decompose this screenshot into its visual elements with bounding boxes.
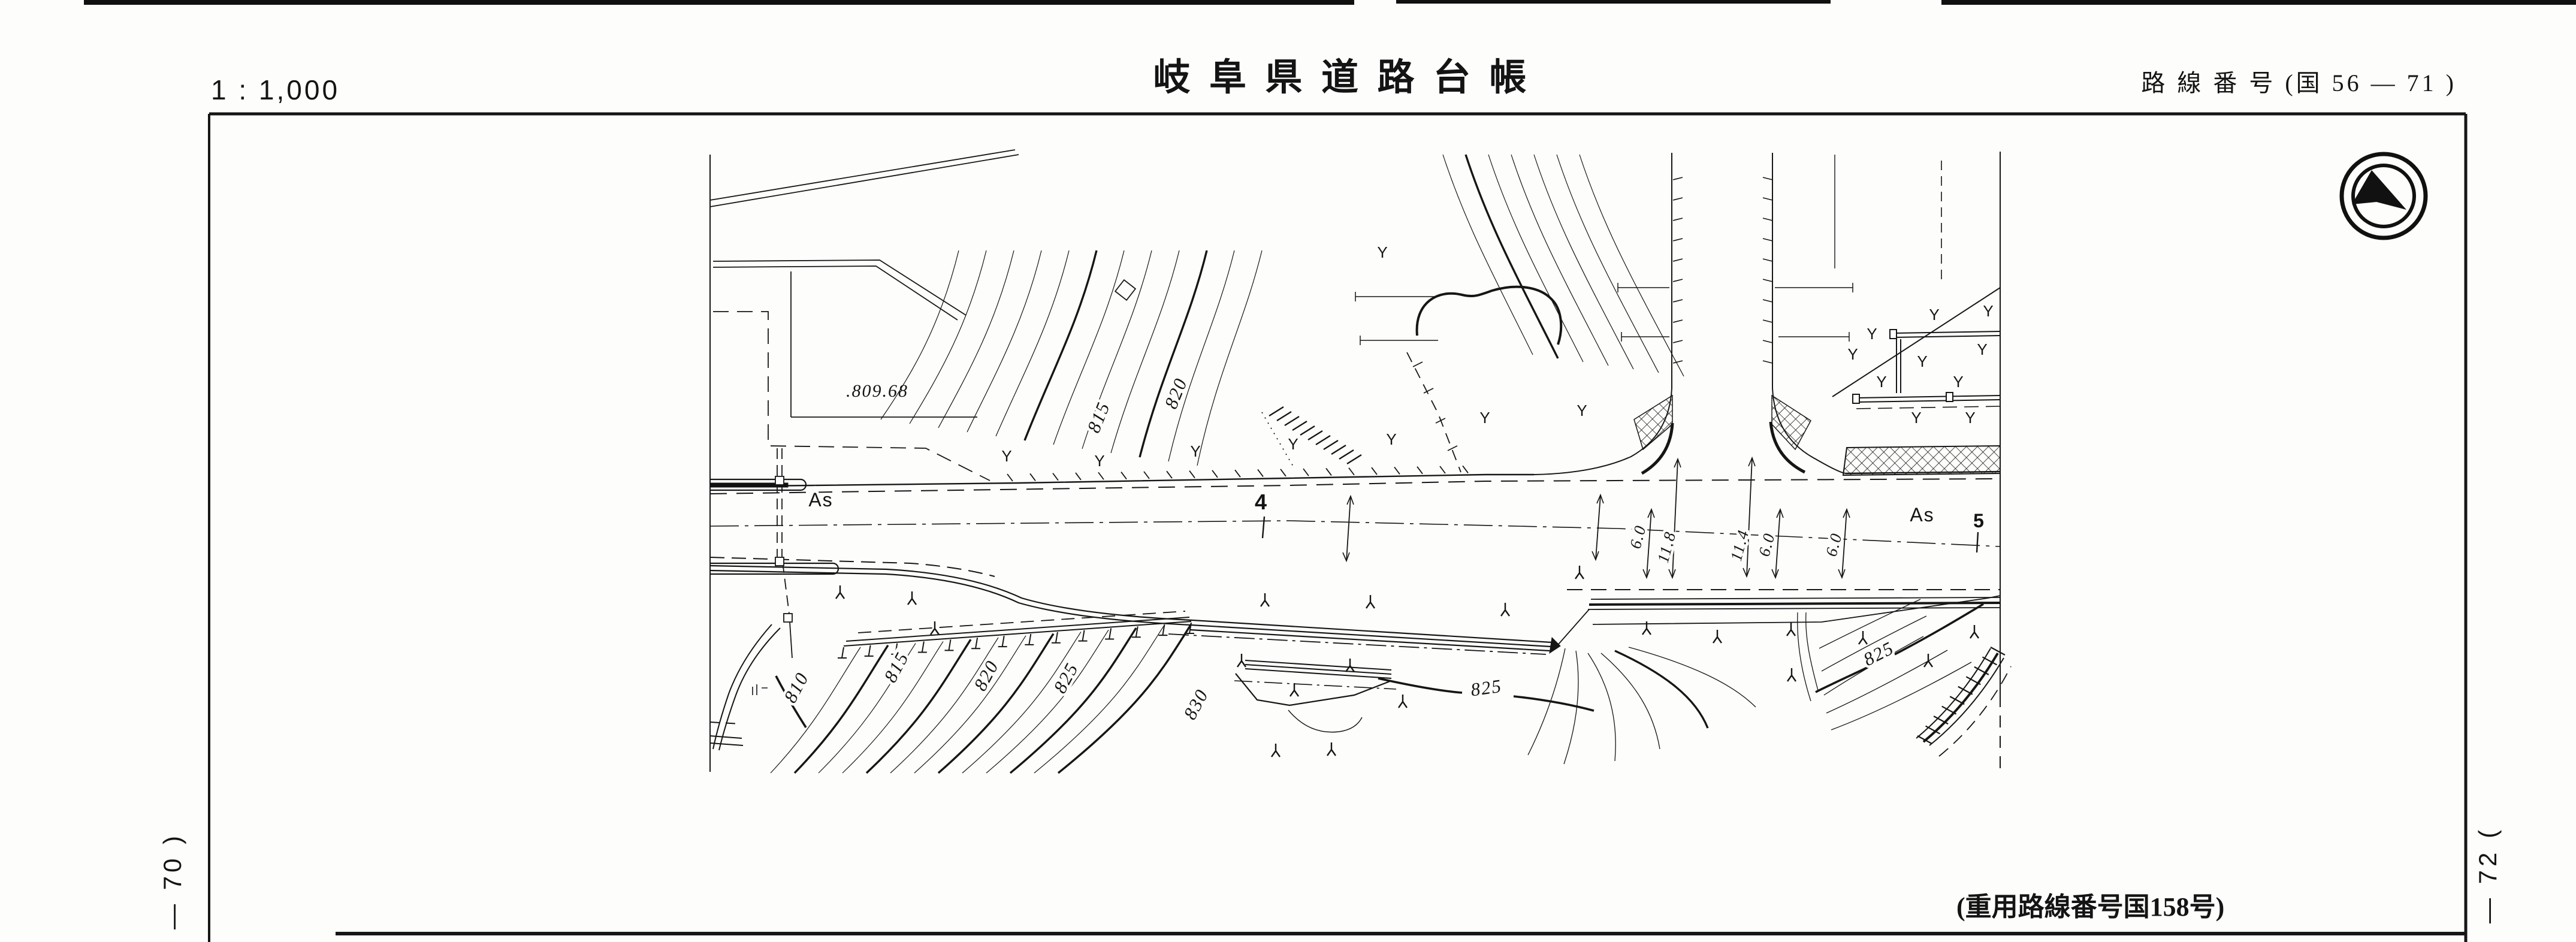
vegetation-y-mark: Y xyxy=(1876,373,1886,391)
vegetation-lambda-mark xyxy=(1787,668,1796,681)
edge-tick xyxy=(1763,300,1772,302)
edge-tick xyxy=(1673,300,1683,302)
station-label: As xyxy=(808,489,833,511)
embankment-slope xyxy=(838,177,1772,658)
dimension-label: 6.0 xyxy=(1822,531,1846,558)
edge-tick xyxy=(1763,177,1772,180)
vegetation-lambda-mark xyxy=(1787,623,1795,636)
contour-line xyxy=(962,632,1081,773)
pond-contour xyxy=(1407,287,1561,472)
trail-dashed xyxy=(1407,352,1461,472)
hatch-stroke xyxy=(1308,431,1322,440)
hatch-stroke xyxy=(1292,421,1307,430)
vegetation-y-mark: Y xyxy=(1929,306,1939,324)
slope-tooth xyxy=(944,639,953,650)
vegetation-y-mark: Y xyxy=(1094,452,1104,470)
edge-tick xyxy=(1394,467,1400,474)
left-sheet-ref: — 70 ) xyxy=(158,832,186,929)
road-centerline xyxy=(710,521,2000,547)
vegetation-y-mark: Y xyxy=(1190,442,1200,460)
contour-line xyxy=(1140,250,1207,457)
vegetation-y-mark: Y xyxy=(1386,430,1396,448)
dimension-line xyxy=(1672,459,1678,578)
edge-tick xyxy=(1763,340,1772,343)
contour-line xyxy=(1168,250,1234,461)
vegetation-lambda-mark xyxy=(908,591,916,605)
edge-tick xyxy=(1673,279,1683,282)
hatch-stroke xyxy=(1277,412,1291,421)
road-edge-north-left xyxy=(710,475,1534,487)
edge-tick xyxy=(1763,279,1772,282)
arrowhead xyxy=(1592,551,1599,560)
dimension-line xyxy=(1346,496,1351,561)
spring-symbol xyxy=(753,684,768,695)
slope-tooth xyxy=(1079,630,1088,641)
contour-label: 820 xyxy=(1160,375,1191,412)
edge-tick xyxy=(1007,474,1013,481)
hatch-stroke xyxy=(1339,450,1354,459)
edge-tick xyxy=(1673,361,1683,363)
contour-label: 820 xyxy=(970,657,1003,695)
station-tick xyxy=(1263,517,1264,538)
vegetation-lambda-mark xyxy=(836,585,844,599)
station-label: As xyxy=(1910,504,1934,526)
edge-tick xyxy=(1212,470,1218,478)
contour-line xyxy=(996,250,1069,436)
main-road xyxy=(710,472,2000,654)
edge-tick xyxy=(1258,469,1263,476)
sheet-frame xyxy=(209,114,2466,942)
station-tick xyxy=(1977,532,1978,552)
edge-tick xyxy=(1673,198,1683,200)
wall-end-point xyxy=(1550,638,1560,653)
arrowhead xyxy=(1643,569,1650,578)
edge-tick xyxy=(1144,472,1149,479)
spot-elevation: .809.68 xyxy=(846,381,908,401)
vegetation-lambda-mark xyxy=(1272,744,1280,757)
vegetation-lambda-mark xyxy=(1327,742,1336,756)
vegetation-lambda-mark xyxy=(1237,654,1246,667)
arrowhead xyxy=(1772,569,1778,578)
contour-line xyxy=(795,645,888,773)
contour-line xyxy=(914,636,1026,773)
edge-tick xyxy=(1030,473,1035,481)
road-ledger-sheet: 1 : 1,000 岐 阜 県 道 路 台 帳 路 線 番 号 (国 56 — … xyxy=(0,0,2576,942)
contour-label: 830 xyxy=(1179,686,1213,723)
arrowhead xyxy=(1838,569,1845,578)
contour-line xyxy=(866,639,971,773)
north-arrow-icon xyxy=(2342,154,2426,238)
edge-tick xyxy=(1673,320,1683,322)
edge-tick xyxy=(1673,340,1683,343)
edge-tick xyxy=(1763,361,1772,363)
vegetation-y-mark: Y xyxy=(1965,409,1975,427)
scan-edge-noise xyxy=(84,0,2576,5)
vegetation-lambda-mark xyxy=(1970,625,1979,638)
map-canvas: 1 : 1,000 岐 阜 県 道 路 台 帳 路 線 番 号 (国 56 — … xyxy=(0,0,2576,942)
vegetation-lambda-mark xyxy=(1575,566,1584,579)
contour-line xyxy=(1488,155,1583,362)
overlap-route-note: (重用路線番号国158号) xyxy=(1956,892,2224,922)
retaining-wall-top xyxy=(1589,603,2000,605)
contour-line xyxy=(986,630,1109,773)
contour-line xyxy=(1025,250,1097,440)
contour-fan-east xyxy=(1798,599,2011,756)
survey-offset-lines xyxy=(1355,283,1853,345)
edge-tick xyxy=(1303,469,1309,476)
dimension-line xyxy=(1596,495,1600,560)
contour-label: 815 xyxy=(1083,398,1114,436)
vegetation-y-mark: Y xyxy=(1983,302,1993,320)
vegetation-y-mark: Y xyxy=(1867,325,1877,343)
contour-line xyxy=(1466,155,1558,358)
vegetation-y-mark: Y xyxy=(1917,352,1927,370)
edge-tick xyxy=(1098,472,1104,479)
edge-tick xyxy=(1763,218,1772,221)
map-boundary xyxy=(710,152,2000,772)
hatch-stroke xyxy=(1300,426,1315,435)
edge-tick xyxy=(1281,469,1286,476)
contour-line xyxy=(967,250,1041,432)
vegetation-marks: YYYYYYYYYYYYYYYYYY xyxy=(836,243,1994,757)
vegetation-lambda-mark xyxy=(1346,659,1354,672)
dimension-line xyxy=(1747,458,1752,576)
hatch-stroke xyxy=(1269,407,1284,416)
edge-tick xyxy=(1673,177,1683,180)
edge-tick xyxy=(1167,471,1172,478)
grid-retaining-wall xyxy=(1843,446,2000,475)
slope-tooth xyxy=(838,647,847,658)
contour-line xyxy=(1197,250,1262,466)
vegetation-lambda-mark xyxy=(1924,654,1932,667)
edge-tick xyxy=(1372,467,1377,475)
vegetation-lambda-mark xyxy=(1859,631,1867,644)
dimension-label: 11.8 xyxy=(1654,529,1680,564)
arrowhead xyxy=(1343,552,1349,561)
vegetation-y-mark: Y xyxy=(1577,401,1587,419)
edge-tick xyxy=(1763,320,1772,322)
edge-tick xyxy=(1673,238,1683,241)
vegetation-y-mark: Y xyxy=(1288,435,1298,453)
vegetation-y-mark: Y xyxy=(1377,243,1387,261)
route-number-label: 路 線 番 号 (国 56 — 71 ) xyxy=(2141,70,2457,96)
vegetation-y-mark: Y xyxy=(1847,345,1858,363)
edge-tick xyxy=(1440,466,1445,473)
contour-line xyxy=(1010,628,1136,773)
contour-line xyxy=(1111,250,1179,453)
vegetation-y-mark: Y xyxy=(1001,447,1011,465)
slope-tooth xyxy=(918,642,927,653)
contour-line xyxy=(1580,155,1684,376)
map-scale: 1 : 1,000 xyxy=(211,74,340,105)
slope-hatch-field xyxy=(1262,407,1361,466)
vegetation-lambda-mark xyxy=(1261,593,1269,606)
contour-fan-middle xyxy=(1378,647,1756,764)
edge-tick xyxy=(1326,468,1331,475)
dimension-label: 11.4 xyxy=(1727,527,1753,563)
vegetation-lambda-mark xyxy=(1501,603,1509,616)
vegetation-y-mark: Y xyxy=(1977,340,1987,358)
slope-tooth xyxy=(971,638,980,648)
vegetation-y-mark: Y xyxy=(1953,373,1963,391)
edge-tick xyxy=(1417,467,1423,474)
vegetation-lambda-mark xyxy=(1713,630,1722,643)
vegetation-lambda-mark xyxy=(1366,595,1375,608)
hatch-stroke xyxy=(1316,436,1330,445)
wing-wall-right xyxy=(1772,395,1811,449)
edge-tick xyxy=(1763,259,1772,261)
contour-label: 810 xyxy=(780,669,813,707)
slope-tooth xyxy=(1158,624,1167,635)
hatch-stroke xyxy=(1324,440,1338,449)
edge-tick xyxy=(1349,468,1354,475)
page-title: 岐 阜 県 道 路 台 帳 xyxy=(1153,57,1531,98)
vegetation-lambda-mark xyxy=(1290,683,1298,696)
right-sheet-ref: — 72 ( xyxy=(2474,826,2502,923)
dimension-line xyxy=(1647,509,1651,578)
edge-tick xyxy=(1076,473,1081,480)
dimension-lines xyxy=(1263,458,1978,578)
contour-line xyxy=(1534,155,1633,369)
edge-tick xyxy=(1763,238,1772,241)
edge-tick xyxy=(1053,473,1058,481)
edge-tick xyxy=(1763,198,1772,200)
slope-tooth xyxy=(998,636,1007,647)
right-of-way-north-dashed xyxy=(710,479,2000,494)
dimension-label: 6.0 xyxy=(1626,523,1650,551)
hatch-stroke xyxy=(1347,455,1361,464)
vegetation-y-mark: Y xyxy=(1479,409,1490,427)
northwest-plot-area xyxy=(710,150,1136,481)
edge-tick xyxy=(1673,259,1683,261)
hatch-stroke xyxy=(1331,445,1346,454)
contour-line xyxy=(910,250,986,424)
contour-fans xyxy=(771,155,1684,773)
vegetation-lambda-mark xyxy=(1399,695,1407,708)
wall-rung xyxy=(1942,707,1956,714)
edge-tick xyxy=(1189,471,1195,478)
edge-tick xyxy=(1673,218,1683,221)
wing-wall-left xyxy=(1634,395,1672,449)
vegetation-y-mark: Y xyxy=(1911,409,1921,427)
contour-line xyxy=(938,634,1053,773)
edge-tick xyxy=(1235,470,1240,477)
contour-line xyxy=(1034,626,1164,773)
hatch-stroke xyxy=(1285,416,1299,425)
station-label: 4 xyxy=(1255,490,1268,514)
contour-label: 825 xyxy=(1049,659,1083,697)
lower-terrace xyxy=(1234,660,1396,732)
edge-tick xyxy=(1121,472,1127,479)
slope-tooth xyxy=(865,645,874,656)
station-label: 5 xyxy=(1973,510,1985,532)
contour-line xyxy=(1443,155,1533,355)
slope-tooth xyxy=(1025,634,1034,645)
contour-line xyxy=(938,250,1014,428)
contour-label: 825 xyxy=(1469,675,1503,701)
edge-tick xyxy=(1463,466,1468,473)
contour-label: 815 xyxy=(880,648,913,686)
